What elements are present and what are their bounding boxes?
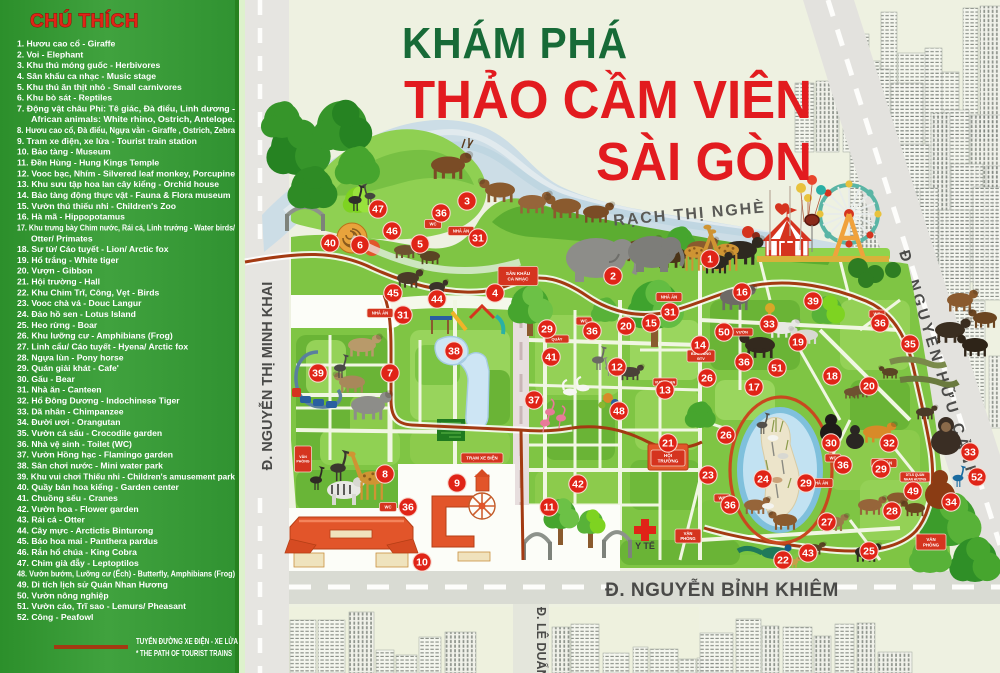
svg-text:CHÚ THÍCH: CHÚ THÍCH <box>30 10 139 32</box>
svg-text:24. Đảo hồ sen - Lotus Island: 24. Đảo hồ sen - Lotus Island <box>17 309 136 319</box>
svg-text:ĐTV: ĐTV <box>697 357 705 361</box>
svg-text:36: 36 <box>874 318 886 330</box>
svg-text:7. Động vật châu Phi: Tê giác,: 7. Động vật châu Phi: Tê giác, Đà điểu, … <box>17 103 235 113</box>
svg-text:7: 7 <box>387 368 393 380</box>
svg-text:26. Khu lưỡng cư - Amphibians: 26. Khu lưỡng cư - Amphibians (Frog) <box>17 331 173 341</box>
svg-text:42: 42 <box>572 479 584 491</box>
svg-text:37: 37 <box>528 395 540 407</box>
svg-text:25: 25 <box>863 546 875 558</box>
svg-text:39: 39 <box>312 368 324 380</box>
svg-text:36: 36 <box>837 460 849 472</box>
svg-text:34. Đười ươi - Orangutan: 34. Đười ươi - Orangutan <box>17 417 120 427</box>
svg-text:14: 14 <box>694 340 706 352</box>
svg-text:NHÀ ĂN: NHÀ ĂN <box>453 229 469 234</box>
svg-text:48: 48 <box>613 406 625 418</box>
svg-text:Y TẾ: Y TẾ <box>635 541 655 551</box>
svg-text:49. Di tích lịch sử Quán Nhan: 49. Di tích lịch sử Quán Nhan Hương <box>17 580 168 590</box>
svg-text:45: 45 <box>387 288 399 300</box>
svg-text:42. Vườn hoa - Flower garden: 42. Vườn hoa - Flower garden <box>17 504 139 514</box>
svg-text:8. Hươu cao cổ, Đà điểu, Ngựa: 8. Hươu cao cổ, Đà điểu, Ngựa vằn - Gira… <box>17 124 235 135</box>
svg-text:20: 20 <box>620 321 632 333</box>
svg-text:Đ. NGUYỄN BỈNH KHIÊM: Đ. NGUYỄN BỈNH KHIÊM <box>605 579 839 601</box>
svg-text:VĂN: VĂN <box>684 531 693 536</box>
svg-text:31. Nhà ăn - Canteen: 31. Nhà ăn - Canteen <box>17 385 102 395</box>
svg-text:36: 36 <box>402 502 414 514</box>
svg-text:African animals: White rhino,: African animals: White rhino, Ostrich, A… <box>31 114 235 124</box>
svg-text:4. Sân khấu ca nhạc - Music st: 4. Sân khấu ca nhạc - Music stage <box>17 71 156 81</box>
svg-text:33: 33 <box>763 319 775 331</box>
svg-text:9. Tram xe điện, xe lửa - Tour: 9. Tram xe điện, xe lửa - Tourist train … <box>17 136 197 146</box>
svg-text:38. Sân chơi nước - Mini water: 38. Sân chơi nước - Mini water park <box>17 461 163 471</box>
svg-text:6. Khu bò sát - Reptiles: 6. Khu bò sát - Reptiles <box>17 93 112 103</box>
svg-text:44: 44 <box>431 294 443 306</box>
svg-text:51: 51 <box>771 363 783 375</box>
svg-text:5. Khu thú ăn thịt nhỏ - Small: 5. Khu thú ăn thịt nhỏ - Small carnivore… <box>17 82 182 92</box>
svg-text:27. Linh cẩu/ Cáo tuyết - Hyen: 27. Linh cẩu/ Cáo tuyết - Hyena/ Arctic … <box>17 342 188 352</box>
svg-text:PHÒNG: PHÒNG <box>923 542 940 547</box>
svg-text:NHAN HƯƠNG: NHAN HƯƠNG <box>904 477 927 481</box>
svg-text:23: 23 <box>702 470 714 482</box>
svg-text:35. Vườn cá sấu - Crocodile ga: 35. Vườn cá sấu - Crocodile garden <box>17 428 162 438</box>
svg-text:35: 35 <box>904 339 916 351</box>
svg-text:3. Khu thú móng guốc - Herbivo: 3. Khu thú móng guốc - Herbivores <box>17 60 160 70</box>
svg-text:17. Khu trưng bày Chim nước, R: 17. Khu trưng bày Chim nước, Rái cá, Lin… <box>17 222 235 232</box>
svg-text:36: 36 <box>586 326 598 338</box>
svg-text:10. Bảo tàng - Museum: 10. Bảo tàng - Museum <box>17 147 111 157</box>
svg-text:40. Quầy bán hoa kiểng - Garde: 40. Quầy bán hoa kiểng - Garden center <box>17 482 180 492</box>
svg-text:WC: WC <box>385 505 392 510</box>
svg-text:6: 6 <box>357 240 363 252</box>
svg-text:WC: WC <box>581 319 588 324</box>
svg-text:22: 22 <box>777 555 789 567</box>
svg-text:13. Khu sưu tập hoa lan cây ki: 13. Khu sưu tập hoa lan cây kiểng - Orch… <box>17 179 219 189</box>
svg-text:33. Dã nhân - Chimpanzee: 33. Dã nhân - Chimpanzee <box>17 406 124 416</box>
svg-text:26: 26 <box>720 430 732 442</box>
svg-text:PHÒNG: PHÒNG <box>296 459 309 464</box>
svg-text:26: 26 <box>701 373 713 385</box>
svg-text:29: 29 <box>541 324 553 336</box>
svg-text:8: 8 <box>382 469 388 481</box>
svg-text:41: 41 <box>545 352 557 364</box>
svg-text:TUYẾN ĐƯỜNG XE ĐIỆN - XE LỬA: TUYẾN ĐƯỜNG XE ĐIỆN - XE LỬA <box>136 635 238 646</box>
svg-text:23. Vooc chà vá - Douc Langur: 23. Vooc chà vá - Douc Langur <box>17 298 142 308</box>
svg-text:15. Vườn thú thiếu nhi - Child: 15. Vườn thú thiếu nhi - Children's Zoo <box>17 201 176 211</box>
svg-text:WC: WC <box>430 222 437 227</box>
svg-text:45. Báo hoa mai - Panthera par: 45. Báo hoa mai - Panthera pardus <box>17 536 158 546</box>
svg-text:40: 40 <box>324 238 336 250</box>
svg-text:21. Hội trường - Hall: 21. Hội trường - Hall <box>17 277 100 287</box>
svg-text:19. Hổ trắng - White tiger: 19. Hổ trắng - White tiger <box>17 254 119 265</box>
svg-text:31: 31 <box>397 310 409 322</box>
svg-text:TRẠM XE ĐIỆN: TRẠM XE ĐIỆN <box>466 456 497 461</box>
svg-text:50. Vườn nông nghiệp: 50. Vườn nông nghiệp <box>17 590 109 600</box>
svg-text:36. Nhà vệ sinh - Toilet (WC): 36. Nhà vệ sinh - Toilet (WC) <box>17 439 132 449</box>
svg-text:52. Công - Peafowl: 52. Công - Peafowl <box>17 612 93 622</box>
svg-text:12. Vooc bạc, Nhím - Silvered: 12. Vooc bạc, Nhím - Silvered leaf monke… <box>17 168 235 178</box>
svg-text:24: 24 <box>757 474 769 486</box>
svg-text:SÂN KHẤU: SÂN KHẤU <box>506 270 531 276</box>
svg-text:39. Khu vui chơi Thiếu nhi - C: 39. Khu vui chơi Thiếu nhi - Children's … <box>17 471 235 481</box>
svg-text:1. Hươu cao cổ - Giraffe: 1. Hươu cao cổ - Giraffe <box>17 39 116 49</box>
svg-text:47. Chim già đẫy - Leptoptilos: 47. Chim già đẫy - Leptoptilos <box>17 558 139 568</box>
svg-text:TRƯỜNG: TRƯỜNG <box>658 457 679 464</box>
svg-text:46. Rắn hổ chúa - King Cobra: 46. Rắn hổ chúa - King Cobra <box>17 546 137 557</box>
svg-text:3: 3 <box>464 196 470 208</box>
svg-text:11: 11 <box>543 502 554 514</box>
svg-text:52: 52 <box>971 472 983 484</box>
svg-text:THẢO CẦM VIÊN: THẢO CẦM VIÊN <box>404 69 812 130</box>
svg-text:10: 10 <box>416 557 428 569</box>
svg-text:* THE PATH OF TOURIST TRAINS: * THE PATH OF TOURIST TRAINS <box>136 648 232 658</box>
svg-text:20. Vượn - Gibbon: 20. Vượn - Gibbon <box>17 266 92 276</box>
svg-text:31: 31 <box>472 233 484 245</box>
svg-text:36: 36 <box>738 357 750 369</box>
svg-text:13: 13 <box>659 385 671 397</box>
svg-text:30: 30 <box>825 438 837 450</box>
svg-text:20: 20 <box>863 381 875 393</box>
svg-text:2. Voi - Elephant: 2. Voi - Elephant <box>17 49 83 59</box>
svg-text:PHÒNG: PHÒNG <box>680 536 695 541</box>
svg-text:41. Chuồng sếu - Cranes: 41. Chuồng sếu - Cranes <box>17 493 118 503</box>
svg-text:11. Đền Hùng - Hung Kings Temp: 11. Đền Hùng - Hung Kings Temple <box>17 158 159 168</box>
svg-text:51. Vườn cáo, Trĩ sao - Lemurs: 51. Vườn cáo, Trĩ sao - Lemurs/ Pheasant <box>17 601 186 611</box>
svg-text:19: 19 <box>792 337 804 349</box>
svg-text:Đ. LÊ DUẨN: Đ. LÊ DUẨN <box>534 607 549 673</box>
svg-text:38: 38 <box>448 346 460 358</box>
svg-text:QUẦY: QUẦY <box>552 337 563 341</box>
svg-text:Otter/ Primates: Otter/ Primates <box>31 233 93 243</box>
svg-text:49: 49 <box>907 486 919 498</box>
svg-text:28. Ngựa lùn - Pony horse: 28. Ngựa lùn - Pony horse <box>17 352 124 362</box>
svg-text:22. Khu Chim Trĩ, Công, Vẹt -: 22. Khu Chim Trĩ, Công, Vẹt - Birds <box>17 287 160 297</box>
svg-text:Đ. NGUYỄN THỊ MINH KHAI: Đ. NGUYỄN THỊ MINH KHAI <box>259 282 276 471</box>
svg-text:14. Bảo tàng động thực vật - F: 14. Bảo tàng động thực vật - Fauna & Flo… <box>17 190 231 200</box>
svg-text:29. Quán giải khát - Cafe': 29. Quán giải khát - Cafe' <box>17 363 119 373</box>
svg-text:1: 1 <box>707 254 713 266</box>
svg-text:SÀI GÒN: SÀI GÒN <box>596 132 812 192</box>
svg-text:4: 4 <box>492 288 498 300</box>
svg-text:VƯỜN: VƯỜN <box>736 329 748 334</box>
svg-text:43. Rái cá - Otter: 43. Rái cá - Otter <box>17 515 85 525</box>
svg-text:31: 31 <box>664 307 676 319</box>
svg-text:16. Hà mã - Hippopotamus: 16. Hà mã - Hippopotamus <box>17 212 125 222</box>
svg-text:16: 16 <box>736 287 748 299</box>
svg-text:36: 36 <box>724 500 736 512</box>
svg-text:5: 5 <box>417 239 423 251</box>
svg-text:VĂN: VĂN <box>926 537 935 542</box>
svg-text:29: 29 <box>875 464 887 476</box>
svg-text:17: 17 <box>748 382 760 394</box>
svg-text:29: 29 <box>800 478 812 490</box>
svg-text:NHÀ ĂN: NHÀ ĂN <box>372 311 388 316</box>
svg-text:50: 50 <box>718 327 730 339</box>
svg-text:NHÀ ĂN: NHÀ ĂN <box>661 295 677 300</box>
svg-text:18. Sư tử/ Cáo tuyết - Lion/: 18. Sư tử/ Cáo tuyết - Lion/ Arctic fox <box>17 244 169 254</box>
svg-text:32: 32 <box>883 438 895 450</box>
svg-text:KHÁM PHÁ: KHÁM PHÁ <box>402 18 628 68</box>
svg-text:15: 15 <box>645 318 657 330</box>
svg-text:47: 47 <box>372 204 384 216</box>
svg-text:DTLS QUÁN: DTLS QUÁN <box>906 472 925 477</box>
svg-text:33: 33 <box>964 447 976 459</box>
svg-text:21: 21 <box>662 438 674 450</box>
svg-text:46: 46 <box>386 226 398 238</box>
svg-text:43: 43 <box>802 548 814 560</box>
svg-text:18: 18 <box>826 371 838 383</box>
svg-text:VĂN: VĂN <box>299 454 307 459</box>
svg-text:2: 2 <box>610 271 616 283</box>
svg-text:48. Vườn bướm, Lưỡng cư (Ếch): 48. Vườn bướm, Lưỡng cư (Ếch) - Butterfl… <box>17 569 235 579</box>
svg-text:37. Vườn Hồng hạc - Flamingo g: 37. Vườn Hồng hạc - Flamingo garden <box>17 450 173 460</box>
svg-text:39: 39 <box>807 296 819 308</box>
svg-text:27: 27 <box>821 517 833 529</box>
svg-text:CA NHẠC: CA NHẠC <box>507 277 529 282</box>
svg-text:28: 28 <box>886 506 898 518</box>
svg-text:36: 36 <box>435 208 447 220</box>
svg-text:9: 9 <box>454 478 460 490</box>
svg-text:32. Hổ Đông Dương - Indochines: 32. Hổ Đông Dương - Indochinese Tiger <box>17 396 180 406</box>
svg-text:30. Gấu - Bear: 30. Gấu - Bear <box>17 374 75 384</box>
svg-text:44. Cây mực - Arctictis Bintur: 44. Cây mực - Arctictis Binturong <box>17 525 153 535</box>
svg-text:25. Heo rừng - Boar: 25. Heo rừng - Boar <box>17 320 98 330</box>
svg-text:12: 12 <box>611 362 623 374</box>
svg-text:34: 34 <box>945 497 957 509</box>
